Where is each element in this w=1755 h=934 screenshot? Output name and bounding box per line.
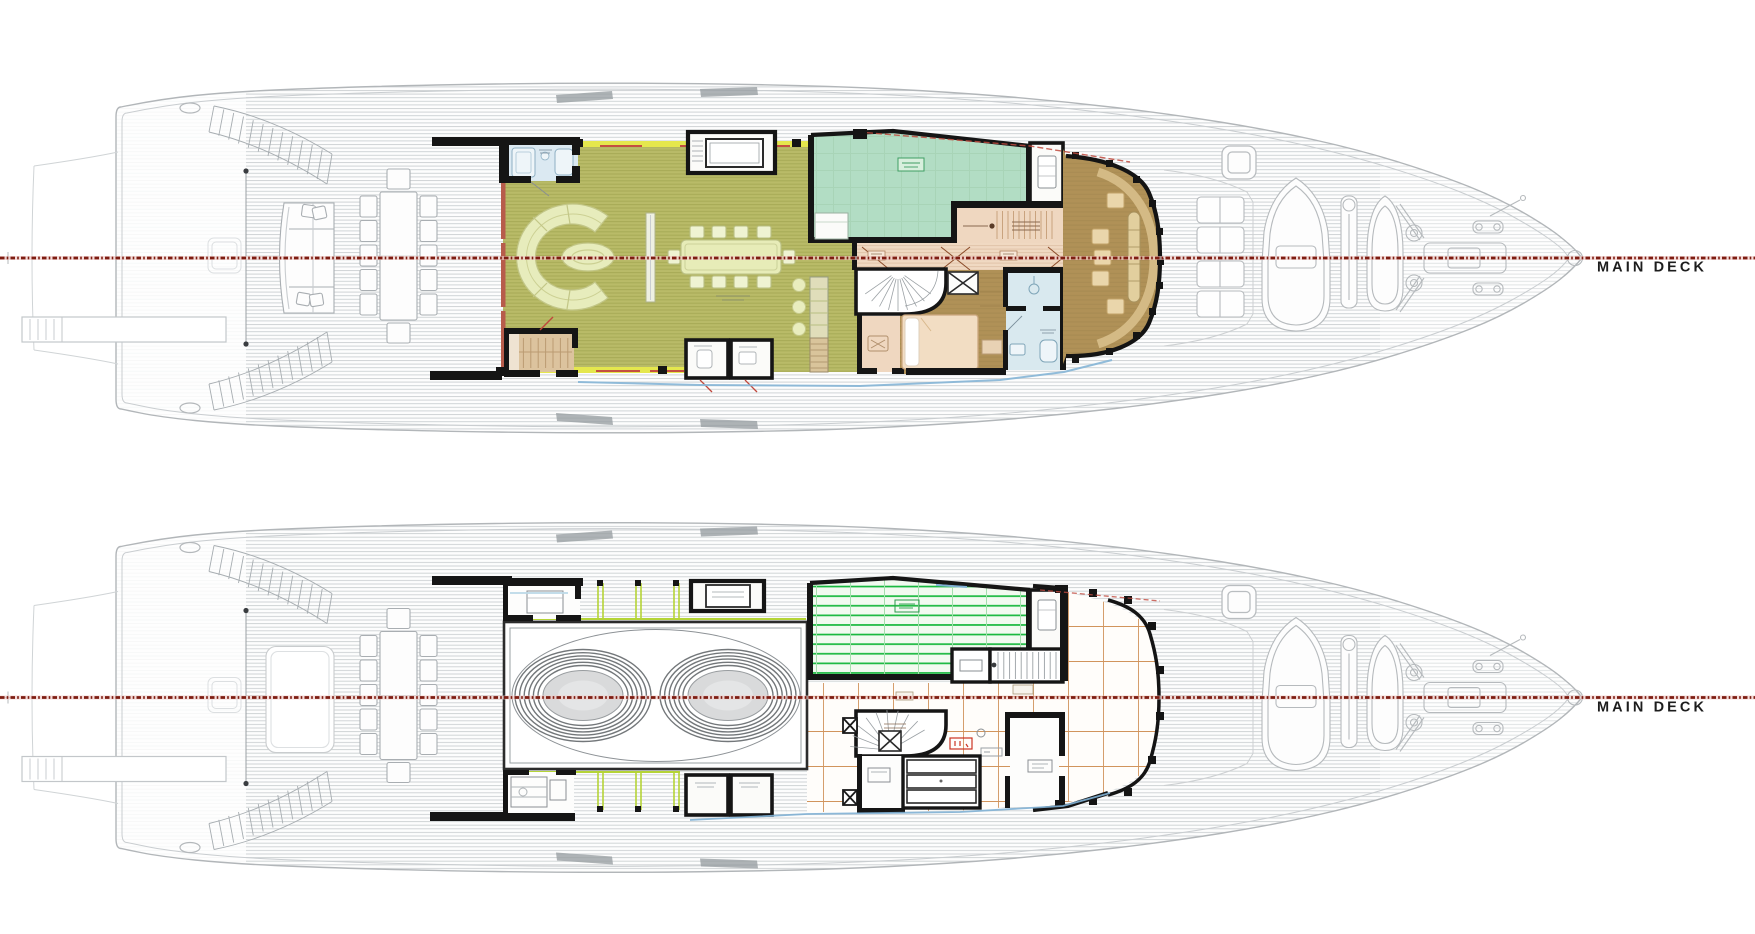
svg-text:MAIN DECK: MAIN DECK: [1597, 700, 1707, 716]
svg-text:MAIN DECK: MAIN DECK: [1597, 260, 1707, 276]
